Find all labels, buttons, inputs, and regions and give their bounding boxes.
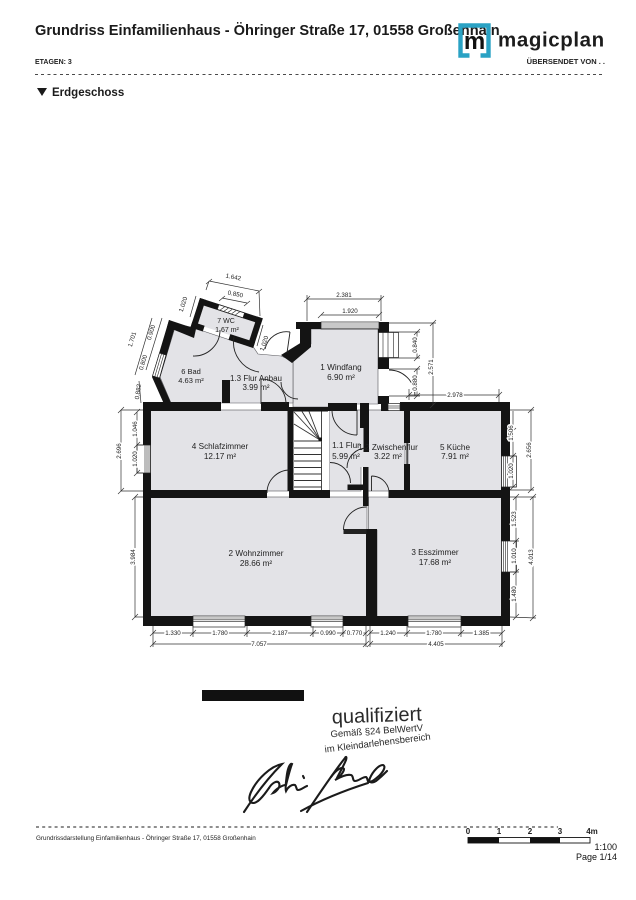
svg-text:0.840: 0.840 bbox=[412, 337, 419, 353]
svg-text:2.381: 2.381 bbox=[336, 292, 352, 299]
svg-text:7.91 m²: 7.91 m² bbox=[441, 452, 469, 461]
svg-text:1.385: 1.385 bbox=[474, 630, 490, 637]
svg-text:1 Windfang: 1 Windfang bbox=[320, 363, 362, 372]
svg-text:1.330: 1.330 bbox=[165, 630, 181, 637]
svg-text:2.978: 2.978 bbox=[447, 392, 463, 399]
svg-text:1.67 m²: 1.67 m² bbox=[215, 327, 239, 334]
svg-text:7.057: 7.057 bbox=[251, 641, 267, 648]
svg-text:2.696: 2.696 bbox=[116, 443, 123, 459]
svg-text:1.642: 1.642 bbox=[225, 273, 242, 283]
svg-text:0.770: 0.770 bbox=[347, 630, 363, 637]
svg-text:2 Wohnzimmer: 2 Wohnzimmer bbox=[229, 549, 284, 558]
svg-text:5 Küche: 5 Küche bbox=[440, 443, 470, 452]
svg-text:4.63 m²: 4.63 m² bbox=[178, 376, 204, 385]
svg-text:12.17 m²: 12.17 m² bbox=[204, 452, 237, 461]
svg-text:1.920: 1.920 bbox=[342, 308, 358, 315]
svg-text:1.020: 1.020 bbox=[508, 463, 515, 479]
svg-text:4.405: 4.405 bbox=[428, 641, 444, 648]
svg-text:2.571: 2.571 bbox=[428, 359, 435, 375]
svg-text:1.010: 1.010 bbox=[511, 548, 518, 564]
svg-text:1.480: 1.480 bbox=[511, 586, 518, 602]
svg-text:28.66 m²: 28.66 m² bbox=[240, 559, 273, 568]
svg-text:3.99 m²: 3.99 m² bbox=[242, 383, 269, 392]
svg-text:3.22 m²: 3.22 m² bbox=[374, 452, 402, 461]
svg-text:1.701: 1.701 bbox=[127, 331, 138, 348]
svg-text:1.020: 1.020 bbox=[178, 296, 190, 313]
svg-text:1.3 Flur Anbau: 1.3 Flur Anbau bbox=[230, 374, 282, 383]
svg-text:17.68 m²: 17.68 m² bbox=[419, 558, 452, 567]
svg-text:0.880: 0.880 bbox=[412, 375, 419, 391]
svg-text:1.780: 1.780 bbox=[426, 630, 442, 637]
svg-text:0.882: 0.882 bbox=[134, 383, 143, 400]
svg-text:7 WC: 7 WC bbox=[217, 318, 235, 325]
svg-text:4.013: 4.013 bbox=[528, 549, 535, 565]
svg-text:0.990: 0.990 bbox=[320, 630, 336, 637]
svg-text:0: 0 bbox=[466, 827, 471, 836]
svg-text:1: 1 bbox=[497, 827, 502, 836]
svg-text:6.90 m²: 6.90 m² bbox=[327, 373, 355, 382]
svg-text:1.523: 1.523 bbox=[511, 511, 518, 527]
svg-text:1.020: 1.020 bbox=[132, 451, 139, 467]
svg-text:1:100: 1:100 bbox=[594, 842, 617, 852]
svg-text:2.187: 2.187 bbox=[272, 630, 288, 637]
svg-text:6 Bad: 6 Bad bbox=[181, 367, 201, 376]
svg-text:4m: 4m bbox=[586, 827, 598, 836]
svg-text:3.984: 3.984 bbox=[130, 549, 137, 565]
svg-text:4 Schlafzimmer: 4 Schlafzimmer bbox=[192, 442, 249, 451]
svg-text:1.506: 1.506 bbox=[508, 425, 515, 441]
svg-text:0.800: 0.800 bbox=[138, 354, 149, 371]
svg-text:0.850: 0.850 bbox=[227, 290, 244, 300]
svg-text:1.046: 1.046 bbox=[132, 421, 139, 437]
svg-text:3 Esszimmer: 3 Esszimmer bbox=[411, 548, 459, 557]
svg-text:1.240: 1.240 bbox=[380, 630, 396, 637]
svg-text:2: 2 bbox=[528, 827, 533, 836]
svg-text:2.656: 2.656 bbox=[526, 442, 533, 458]
svg-text:1.780: 1.780 bbox=[212, 630, 228, 637]
svg-text:Grundrissdarstellung Einfamili: Grundrissdarstellung Einfamilienhaus - Ö… bbox=[36, 834, 256, 842]
svg-text:Page 1/14: Page 1/14 bbox=[576, 852, 617, 862]
svg-text:1.1 Flur: 1.1 Flur bbox=[332, 441, 360, 450]
svg-text:3: 3 bbox=[558, 827, 563, 836]
svg-text:5.99 m²: 5.99 m² bbox=[332, 452, 360, 461]
svg-text:1.2 Zwischenflur: 1.2 Zwischenflur bbox=[358, 443, 418, 452]
svg-text:1.020: 1.020 bbox=[259, 335, 271, 352]
